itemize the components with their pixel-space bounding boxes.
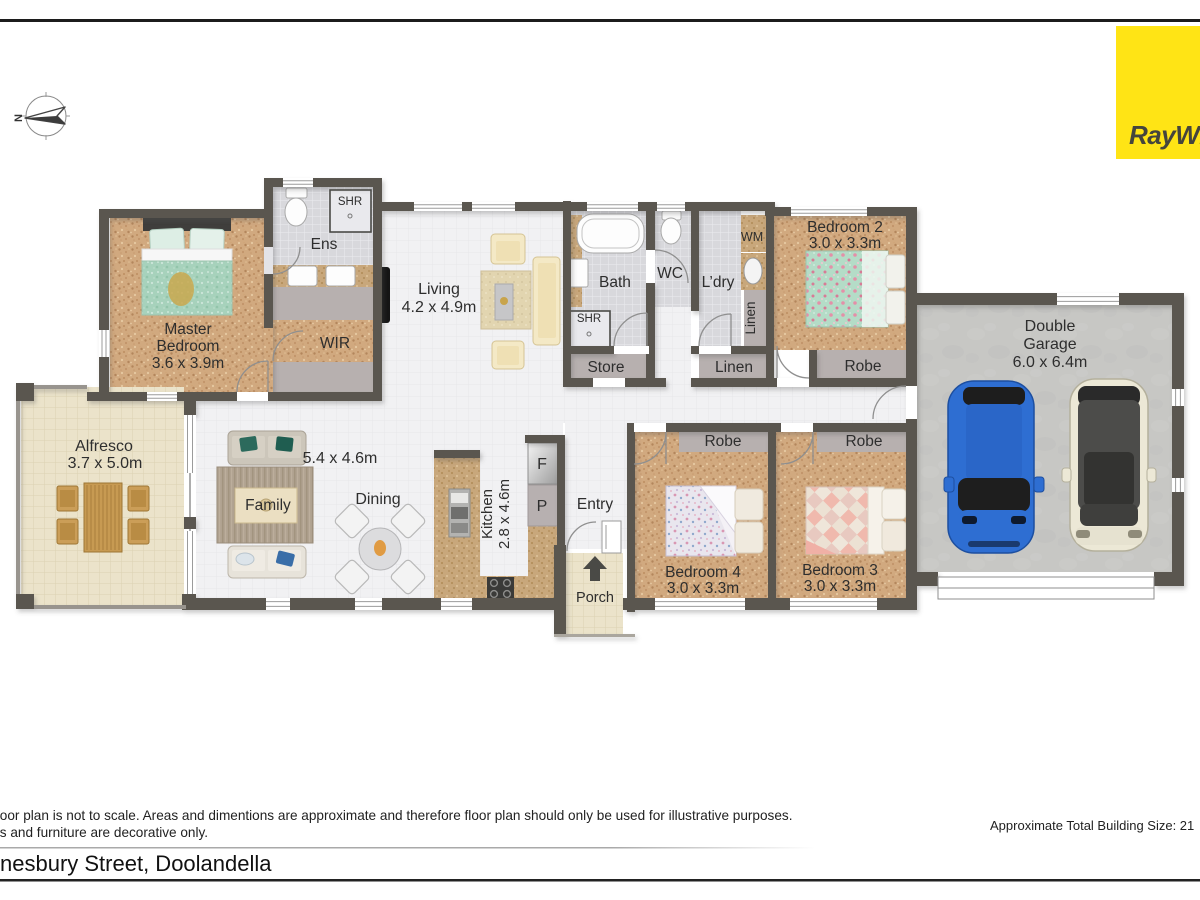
svg-text:Living: Living [418,281,460,298]
svg-text:N: N [13,114,25,122]
svg-text:5.4 x 4.6m: 5.4 x 4.6m [303,450,378,467]
svg-text:Robe: Robe [844,358,881,375]
svg-text:Bedroom 2: Bedroom 2 [807,219,883,236]
svg-text:Bedroom 3: Bedroom 3 [802,562,878,579]
svg-text:3.0 x 3.3m: 3.0 x 3.3m [667,580,739,597]
svg-text:4.2 x 4.9m: 4.2 x 4.9m [402,299,477,316]
svg-text:nesbury Street, Doolandella: nesbury Street, Doolandella [0,851,272,876]
svg-text:Family: Family [245,497,291,514]
svg-text:Store: Store [587,359,624,376]
svg-text:Dining: Dining [355,491,400,508]
svg-text:Master: Master [164,321,211,338]
svg-text:3.7 x 5.0m: 3.7 x 5.0m [68,455,143,472]
svg-text:Double: Double [1025,318,1076,335]
svg-text:Robe: Robe [704,433,741,450]
svg-text:Alfresco: Alfresco [75,438,133,455]
svg-text:Kitchen: Kitchen [479,489,496,539]
svg-text:3.6 x 3.9m: 3.6 x 3.9m [152,355,224,372]
svg-text:SHR: SHR [577,313,601,325]
svg-text:L’dry: L’dry [702,274,735,291]
svg-text:WM: WM [741,230,763,244]
svg-text:Garage: Garage [1023,336,1076,353]
svg-text:Ens: Ens [311,236,338,253]
svg-text:P: P [537,498,548,515]
svg-text:WC: WC [657,265,683,282]
svg-text:RayWhi: RayWhi [1129,120,1200,150]
svg-text:F: F [537,456,547,473]
svg-text:Bath: Bath [599,274,631,291]
svg-text:Linen: Linen [743,301,758,334]
svg-text:3.0 x 3.3m: 3.0 x 3.3m [809,235,881,252]
svg-text:WIR: WIR [320,335,350,352]
svg-text:3.0 x 3.3m: 3.0 x 3.3m [804,578,876,595]
svg-text:2.8 x 4.6m: 2.8 x 4.6m [496,479,513,549]
svg-text:SHR: SHR [338,196,362,208]
svg-text:Robe: Robe [845,433,882,450]
svg-text:6.0 x 6.4m: 6.0 x 6.4m [1013,354,1088,371]
svg-text:Bedroom: Bedroom [157,338,220,355]
svg-text:Approximate Total Building Siz: Approximate Total Building Size: 21 [990,818,1194,833]
svg-text:Bedroom 4: Bedroom 4 [665,564,741,581]
svg-text:Linen: Linen [715,359,753,376]
svg-text:Images and furniture are decor: Images and furniture are decorative only… [0,825,208,840]
svg-text:floor plan is not to scale. Ar: floor plan is not to scale. Areas and di… [0,808,792,823]
svg-text:Porch: Porch [576,590,614,606]
svg-text:Entry: Entry [577,496,613,513]
